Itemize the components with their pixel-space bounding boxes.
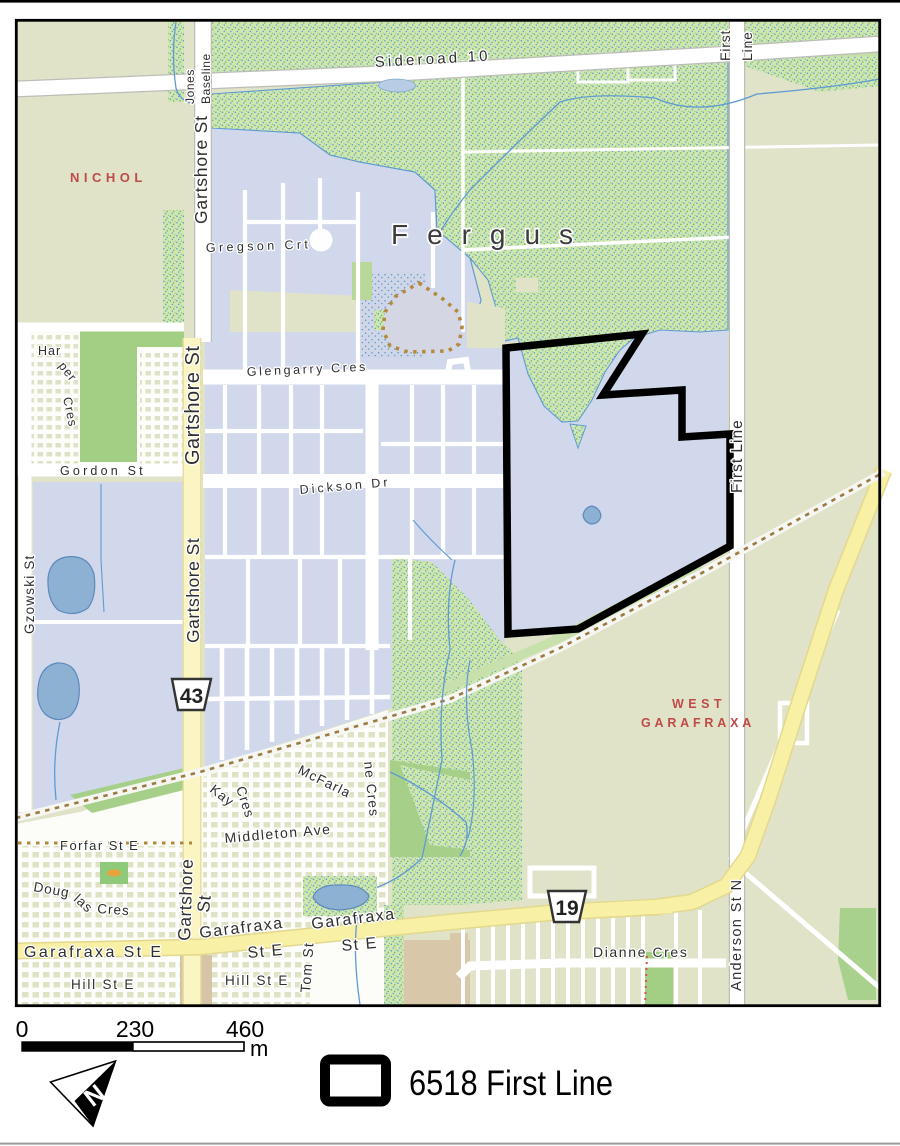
svg-text:GARAFRAXA: GARAFRAXA (641, 716, 755, 730)
svg-text:230: 230 (116, 1016, 154, 1042)
svg-text:First: First (717, 30, 733, 61)
svg-text:m: m (250, 1036, 268, 1061)
svg-text:Har: Har (38, 344, 61, 358)
svg-text:Garafraxa St E: Garafraxa St E (24, 944, 163, 961)
svg-text:WEST: WEST (672, 697, 726, 711)
svg-text:43: 43 (180, 685, 203, 708)
svg-text:Anderson St N: Anderson St N (729, 879, 745, 992)
svg-text:Hill St E: Hill St E (71, 977, 135, 992)
svg-text:Gordon St: Gordon St (60, 464, 146, 478)
svg-text:Gartshore St: Gartshore St (182, 346, 204, 465)
svg-text:First Line: First Line (729, 419, 746, 493)
svg-text:Baseline: Baseline (199, 53, 213, 104)
svg-text:19: 19 (555, 897, 578, 920)
svg-text:Dianne Cres: Dianne Cres (593, 944, 688, 960)
svg-text:St: St (193, 894, 215, 914)
svg-text:Jones: Jones (183, 69, 197, 104)
svg-text:6518 First Line: 6518 First Line (409, 1064, 613, 1103)
svg-text:Cres: Cres (97, 901, 130, 918)
svg-text:Line: Line (739, 31, 755, 61)
svg-text:Gartshore St: Gartshore St (183, 538, 203, 643)
svg-text:0: 0 (16, 1016, 29, 1042)
svg-text:Gzowski St: Gzowski St (22, 554, 37, 634)
svg-text:Gartshore St: Gartshore St (191, 115, 211, 224)
svg-text:NICHOL: NICHOL (70, 170, 147, 185)
svg-text:St E: St E (341, 935, 379, 955)
svg-text:St E: St E (247, 942, 285, 962)
svg-text:Forfar St E: Forfar St E (60, 838, 139, 853)
svg-text:Hill St E: Hill St E (225, 973, 289, 988)
